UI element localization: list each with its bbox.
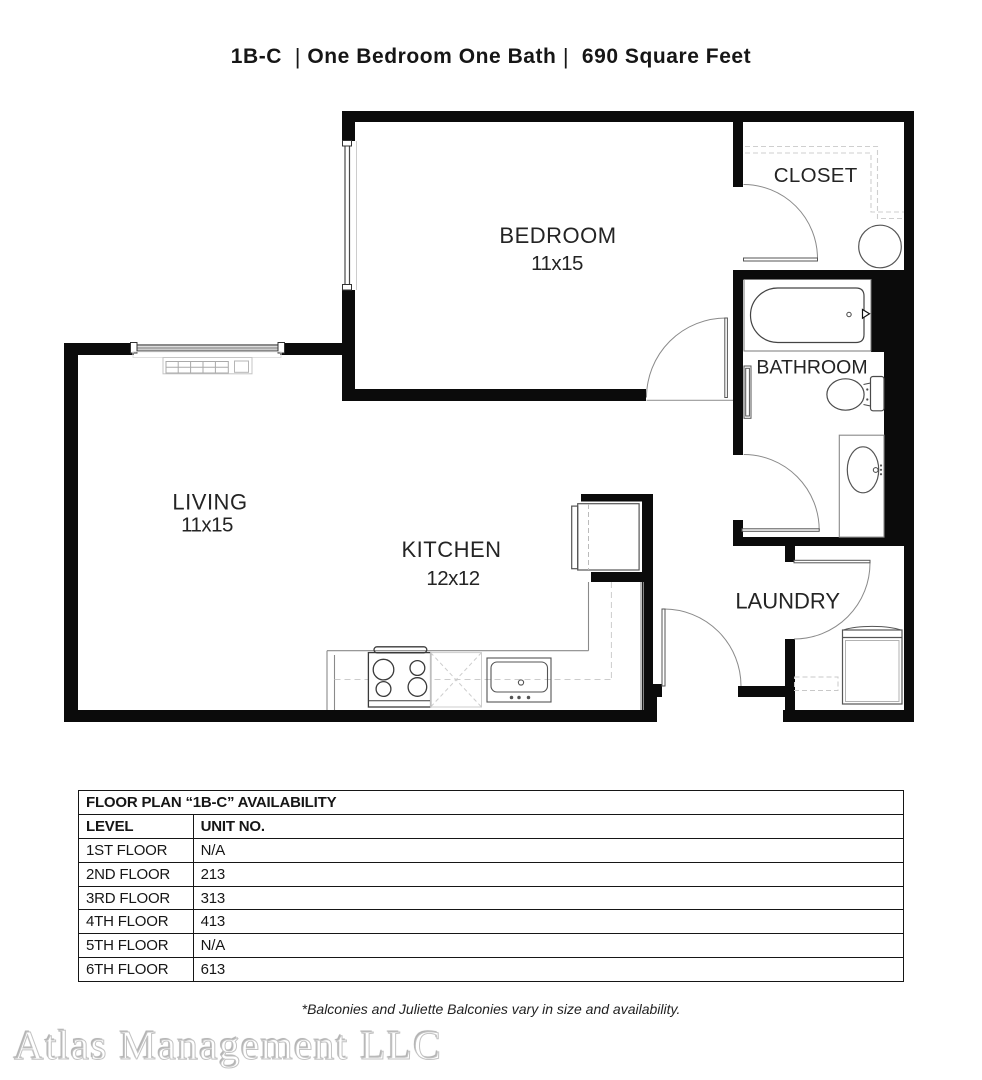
- svg-text:11x15: 11x15: [181, 514, 233, 537]
- svg-text:12x12: 12x12: [426, 567, 479, 590]
- svg-text:BEDROOM: BEDROOM: [499, 223, 616, 248]
- svg-text:BATHROOM: BATHROOM: [756, 357, 867, 379]
- svg-text:KITCHEN: KITCHEN: [401, 537, 501, 562]
- svg-text:CLOSET: CLOSET: [774, 164, 858, 187]
- svg-text:LIVING: LIVING: [172, 490, 247, 515]
- svg-text:11x15: 11x15: [531, 252, 583, 275]
- svg-text:LAUNDRY: LAUNDRY: [735, 589, 840, 614]
